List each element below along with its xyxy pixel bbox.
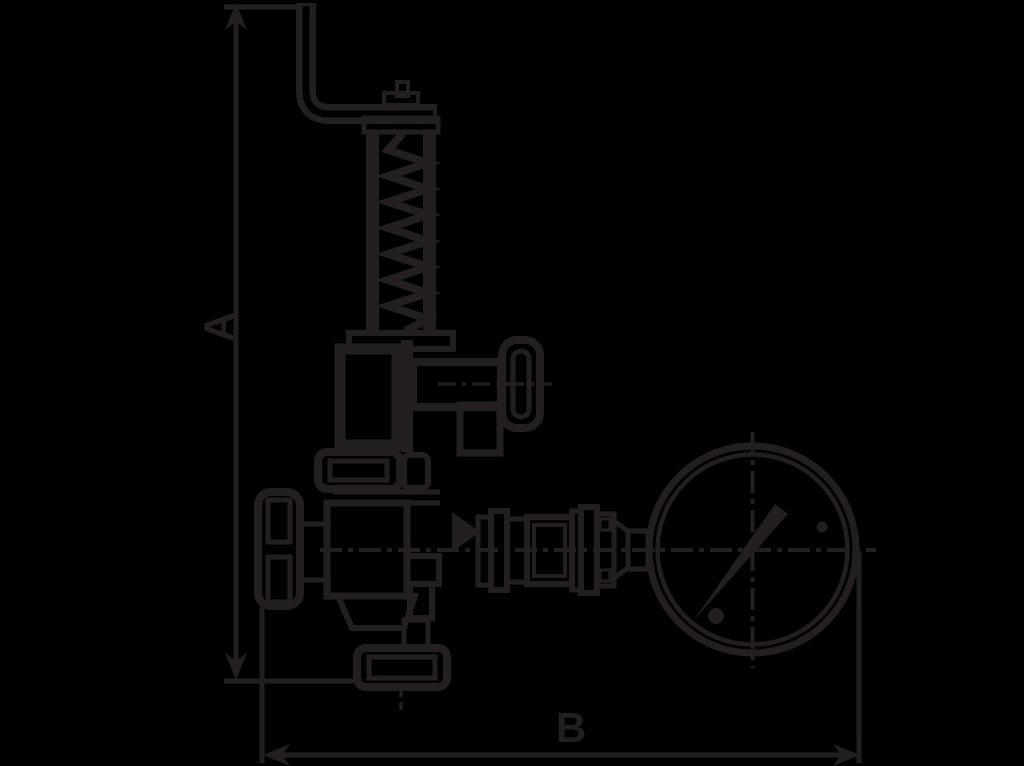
flange-nut-small <box>404 455 428 488</box>
dimension-a-label: A <box>196 312 243 342</box>
valve-technical-drawing: A B <box>0 0 1024 766</box>
handwheel <box>258 492 328 606</box>
bonnet-section <box>340 340 552 453</box>
bonnet-flange <box>318 452 440 503</box>
spring-rail-left <box>366 130 379 333</box>
spring-cap <box>364 118 438 132</box>
handwheel-rim <box>258 492 300 606</box>
gauge-needle <box>694 504 788 620</box>
branch-support-block <box>460 405 500 453</box>
gauge-needle-hub-icon <box>708 608 724 624</box>
dimension-b-label: B <box>556 704 586 751</box>
bonnet-frame <box>340 349 397 445</box>
drawing-canvas: A B <box>0 0 1024 766</box>
spring-housing <box>349 130 453 349</box>
gauge-dial-dot-icon <box>817 522 828 533</box>
spring-coil <box>388 133 428 331</box>
lever-inner <box>306 6 433 114</box>
gauge-piping <box>320 507 876 593</box>
